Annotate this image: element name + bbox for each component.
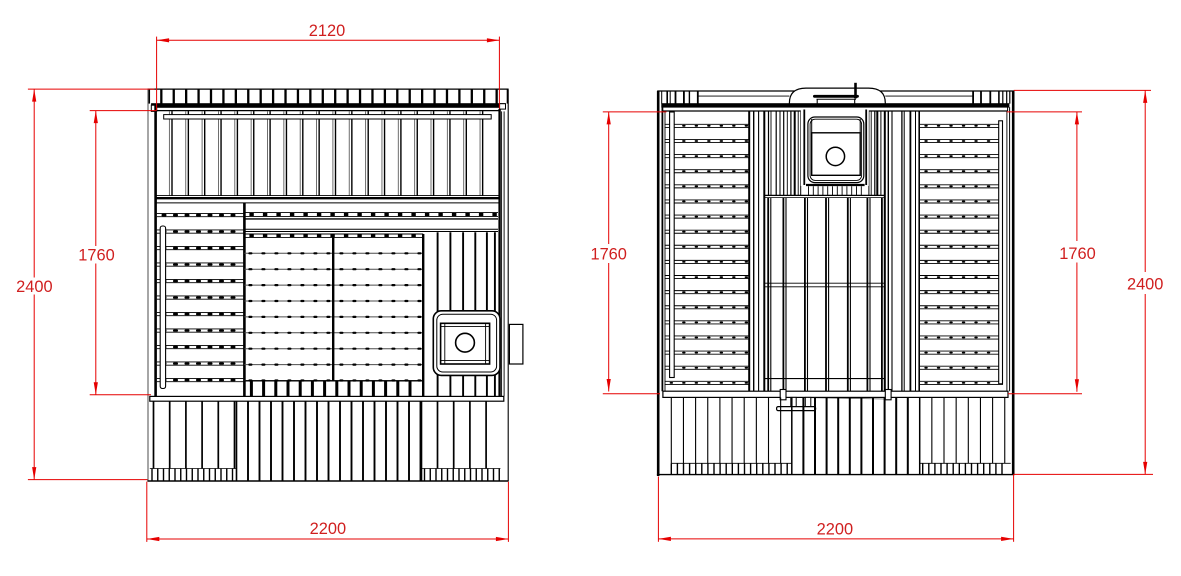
svg-text:1760: 1760 [78, 246, 114, 264]
svg-text:2400: 2400 [1127, 275, 1163, 293]
svg-text:2200: 2200 [310, 520, 346, 538]
svg-text:2400: 2400 [16, 278, 52, 296]
svg-text:1760: 1760 [1059, 245, 1095, 263]
svg-text:2200: 2200 [817, 521, 853, 539]
svg-text:1760: 1760 [590, 245, 626, 263]
svg-text:2120: 2120 [309, 22, 345, 40]
